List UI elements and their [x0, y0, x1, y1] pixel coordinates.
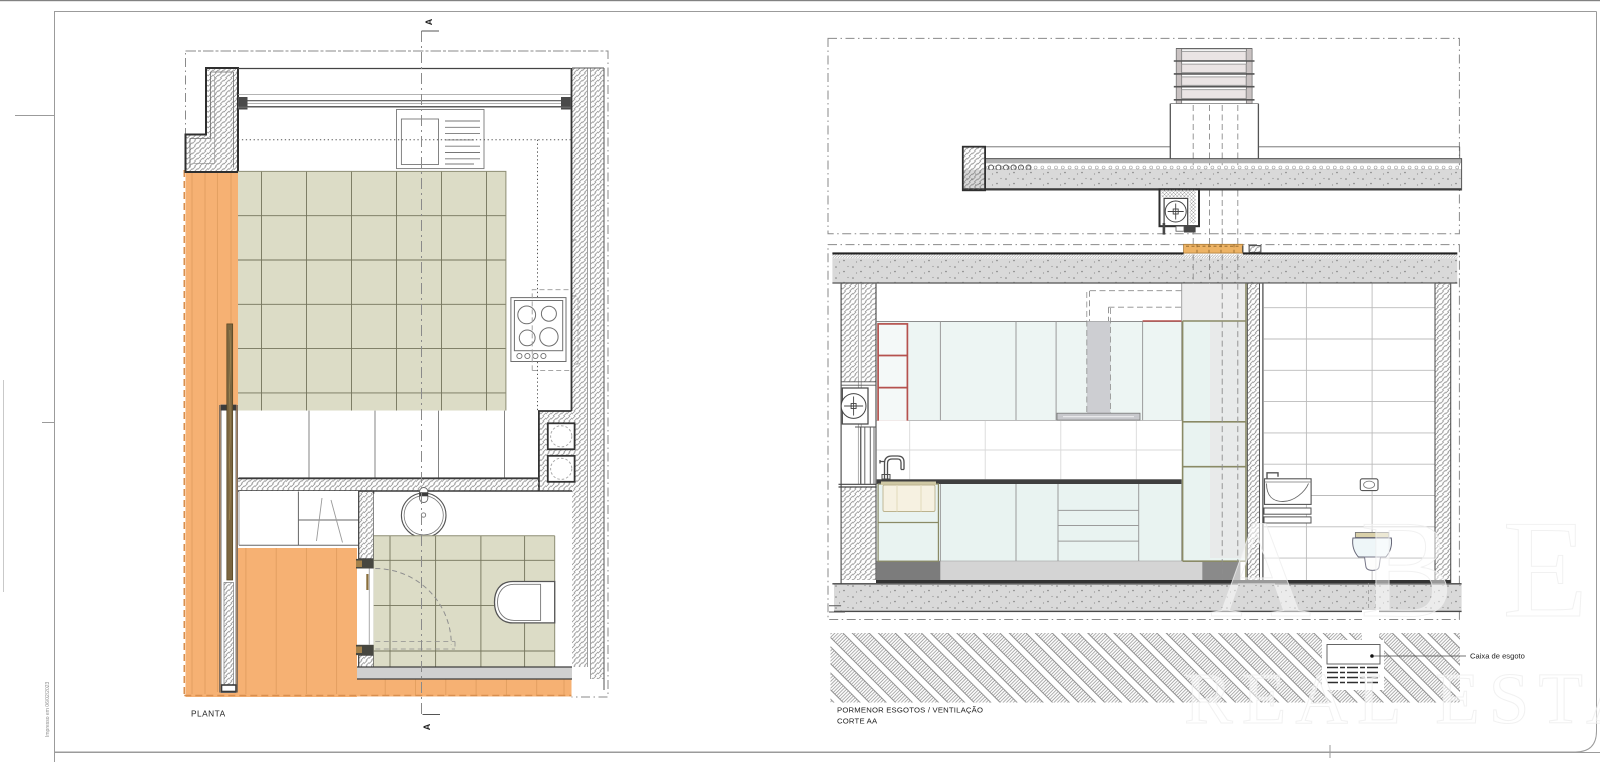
svg-text:REAL ESTATE: REAL ESTATE [1184, 658, 1600, 739]
svg-text:PLANTA: PLANTA [191, 709, 226, 719]
svg-text:A: A [422, 723, 432, 730]
svg-text:ABE: ABE [1210, 492, 1600, 647]
svg-text:CORTE AA: CORTE AA [837, 717, 878, 726]
svg-text:A: A [424, 18, 434, 25]
svg-text:Impresso em 06/02/2023: Impresso em 06/02/2023 [45, 681, 51, 737]
svg-text:PORMENOR ESGOTOS / VENTILAÇÃO: PORMENOR ESGOTOS / VENTILAÇÃO [837, 706, 983, 715]
